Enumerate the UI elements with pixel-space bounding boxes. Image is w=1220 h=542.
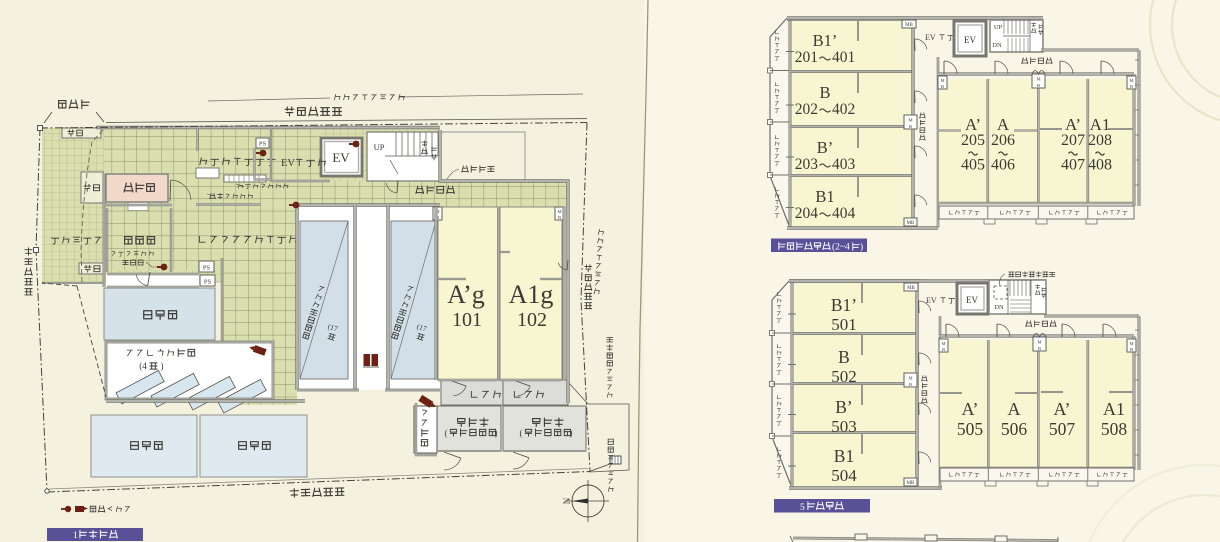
svg-text:B1: B1 <box>815 187 834 206</box>
svg-text:A’: A’ <box>962 399 979 419</box>
svg-text:506: 506 <box>1001 419 1028 439</box>
svg-text:B: B <box>838 347 850 367</box>
svg-text:405: 405 <box>961 157 985 174</box>
svg-text:201: 201 <box>795 49 818 66</box>
svg-text:M: M <box>908 117 912 122</box>
svg-text:(4: (4 <box>139 361 147 371</box>
svg-text:404: 404 <box>832 205 856 222</box>
svg-text:): ) <box>161 361 164 371</box>
svg-text:207: 207 <box>1061 132 1085 149</box>
svg-text:406: 406 <box>991 157 1015 174</box>
svg-text:(: ( <box>520 428 523 438</box>
svg-text:PS: PS <box>203 264 211 271</box>
svg-text:N: N <box>562 497 572 504</box>
svg-text:B: B <box>1037 83 1040 88</box>
svg-text:B: B <box>819 83 830 102</box>
svg-text:PS: PS <box>259 140 267 147</box>
svg-text:M: M <box>941 341 945 346</box>
svg-text:A: A <box>1008 399 1021 419</box>
svg-text:203: 203 <box>795 156 819 173</box>
svg-text:M: M <box>1129 341 1133 346</box>
svg-text:102: 102 <box>517 309 547 331</box>
svg-text:507: 507 <box>1049 419 1076 439</box>
svg-text:): ) <box>570 428 573 438</box>
svg-text:B: B <box>1038 346 1041 351</box>
svg-text:B’: B’ <box>835 397 853 417</box>
svg-text:205: 205 <box>961 132 985 149</box>
svg-text:B’: B’ <box>817 138 834 157</box>
svg-text:403: 403 <box>832 156 856 173</box>
svg-text:101: 101 <box>452 309 482 331</box>
svg-text:MB: MB <box>905 23 913 28</box>
svg-text:A’: A’ <box>1054 399 1071 419</box>
svg-text:B1’: B1’ <box>831 295 857 315</box>
svg-text:M: M <box>908 375 912 380</box>
svg-text:EV: EV <box>281 158 295 169</box>
svg-text:408: 408 <box>1088 157 1112 174</box>
svg-text:B: B <box>1130 84 1133 89</box>
svg-text:504: 504 <box>831 466 857 485</box>
svg-text:B: B <box>909 382 912 387</box>
svg-text:5: 5 <box>800 503 805 513</box>
svg-text:B: B <box>909 124 912 129</box>
svg-text:M: M <box>1129 78 1133 83</box>
svg-text:B: B <box>941 84 944 89</box>
svg-text:A1: A1 <box>1103 399 1125 419</box>
svg-text:B: B <box>1130 347 1133 352</box>
svg-text:MB: MB <box>907 481 915 486</box>
svg-text:407: 407 <box>1061 157 1085 174</box>
svg-text:EV: EV <box>925 33 936 42</box>
svg-text:M: M <box>940 78 944 83</box>
svg-text:): ) <box>495 428 498 438</box>
svg-text:B: B <box>942 347 945 352</box>
svg-text:B1’: B1’ <box>813 31 838 50</box>
svg-text:505: 505 <box>957 419 984 439</box>
svg-text:206: 206 <box>991 132 1015 149</box>
svg-text:M: M <box>1037 339 1041 344</box>
svg-text:A’g: A’g <box>447 280 485 309</box>
svg-text:EV: EV <box>332 150 350 165</box>
svg-text:(: ( <box>445 428 448 438</box>
svg-text:EV: EV <box>964 35 976 45</box>
svg-text:EV: EV <box>926 296 937 305</box>
svg-text:401: 401 <box>832 49 855 66</box>
svg-text:DN: DN <box>992 42 1002 49</box>
svg-text:B1: B1 <box>834 446 854 466</box>
svg-text:M: M <box>1036 76 1040 81</box>
svg-text:202: 202 <box>795 101 818 118</box>
svg-text:208: 208 <box>1088 132 1112 149</box>
svg-text:A1g: A1g <box>509 280 554 309</box>
svg-text:503: 503 <box>831 417 857 436</box>
svg-text:B: B <box>558 215 561 220</box>
svg-text:PS: PS <box>204 278 212 285</box>
svg-text:1: 1 <box>73 531 78 541</box>
svg-text:DN: DN <box>994 304 1004 311</box>
svg-text:UP: UP <box>374 142 385 152</box>
svg-text:502: 502 <box>831 367 857 386</box>
svg-text:MB: MB <box>907 286 915 291</box>
svg-text:508: 508 <box>1101 419 1128 439</box>
svg-text:501: 501 <box>831 315 857 334</box>
svg-text:(2~4: (2~4 <box>832 242 850 253</box>
svg-text:EV: EV <box>966 295 978 305</box>
svg-text:): ) <box>860 242 863 253</box>
svg-text:MB: MB <box>907 221 915 226</box>
svg-text:204: 204 <box>795 205 819 222</box>
svg-text:UP: UP <box>994 24 1003 31</box>
svg-text:M: M <box>557 209 561 214</box>
svg-text:402: 402 <box>832 101 855 118</box>
